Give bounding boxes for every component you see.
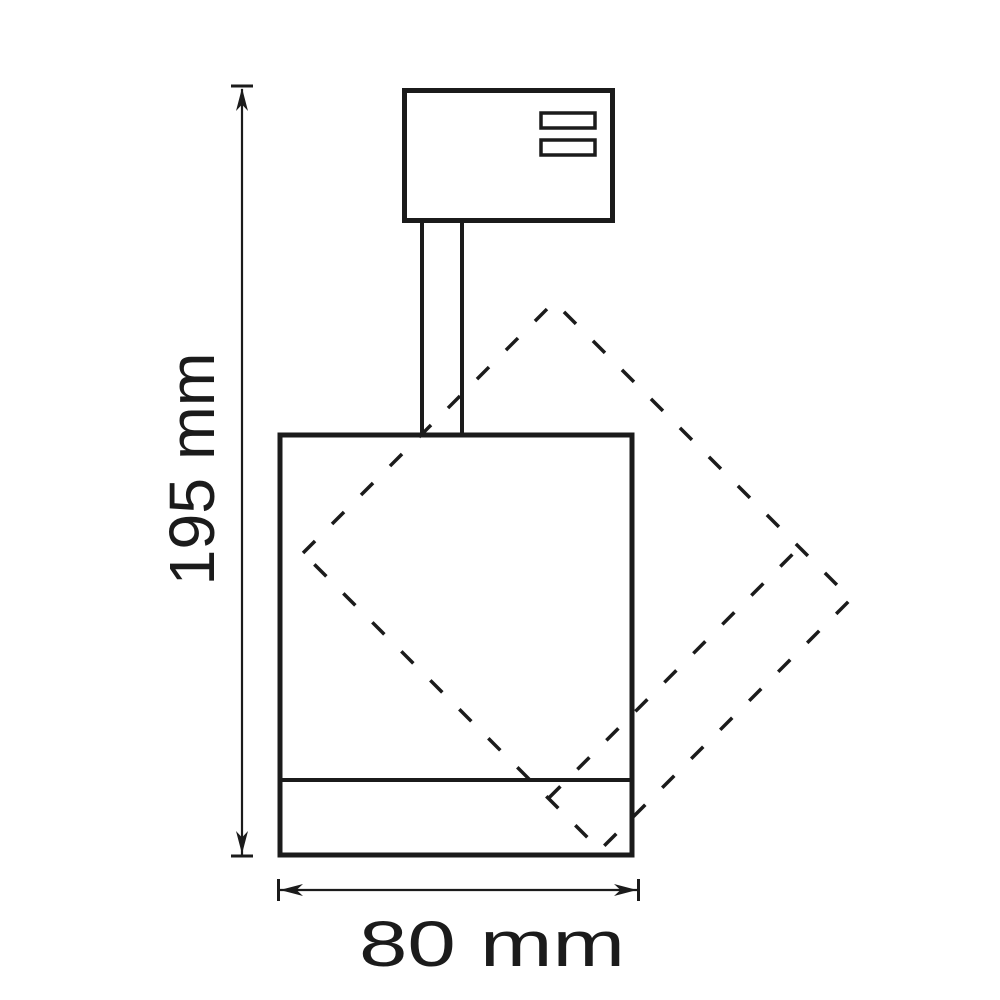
- adapter-slot-bottom: [541, 140, 595, 155]
- adapter-slot-top: [541, 113, 595, 128]
- dimension-drawing-canvas: 195 mm 80 mm: [0, 0, 1000, 1000]
- width-dimension-label: 80 mm: [359, 908, 625, 980]
- rotated-body-trim-line: [548, 547, 799, 798]
- rotated-body-dashed-outline: [303, 302, 851, 850]
- width-dimension: 80 mm: [279, 879, 639, 980]
- height-dimension-label: 195 mm: [156, 353, 228, 586]
- track-spotlight-dimension-drawing: 195 mm 80 mm: [0, 0, 1000, 1000]
- height-dimension: 195 mm: [156, 86, 253, 856]
- lamp-body: [280, 435, 632, 855]
